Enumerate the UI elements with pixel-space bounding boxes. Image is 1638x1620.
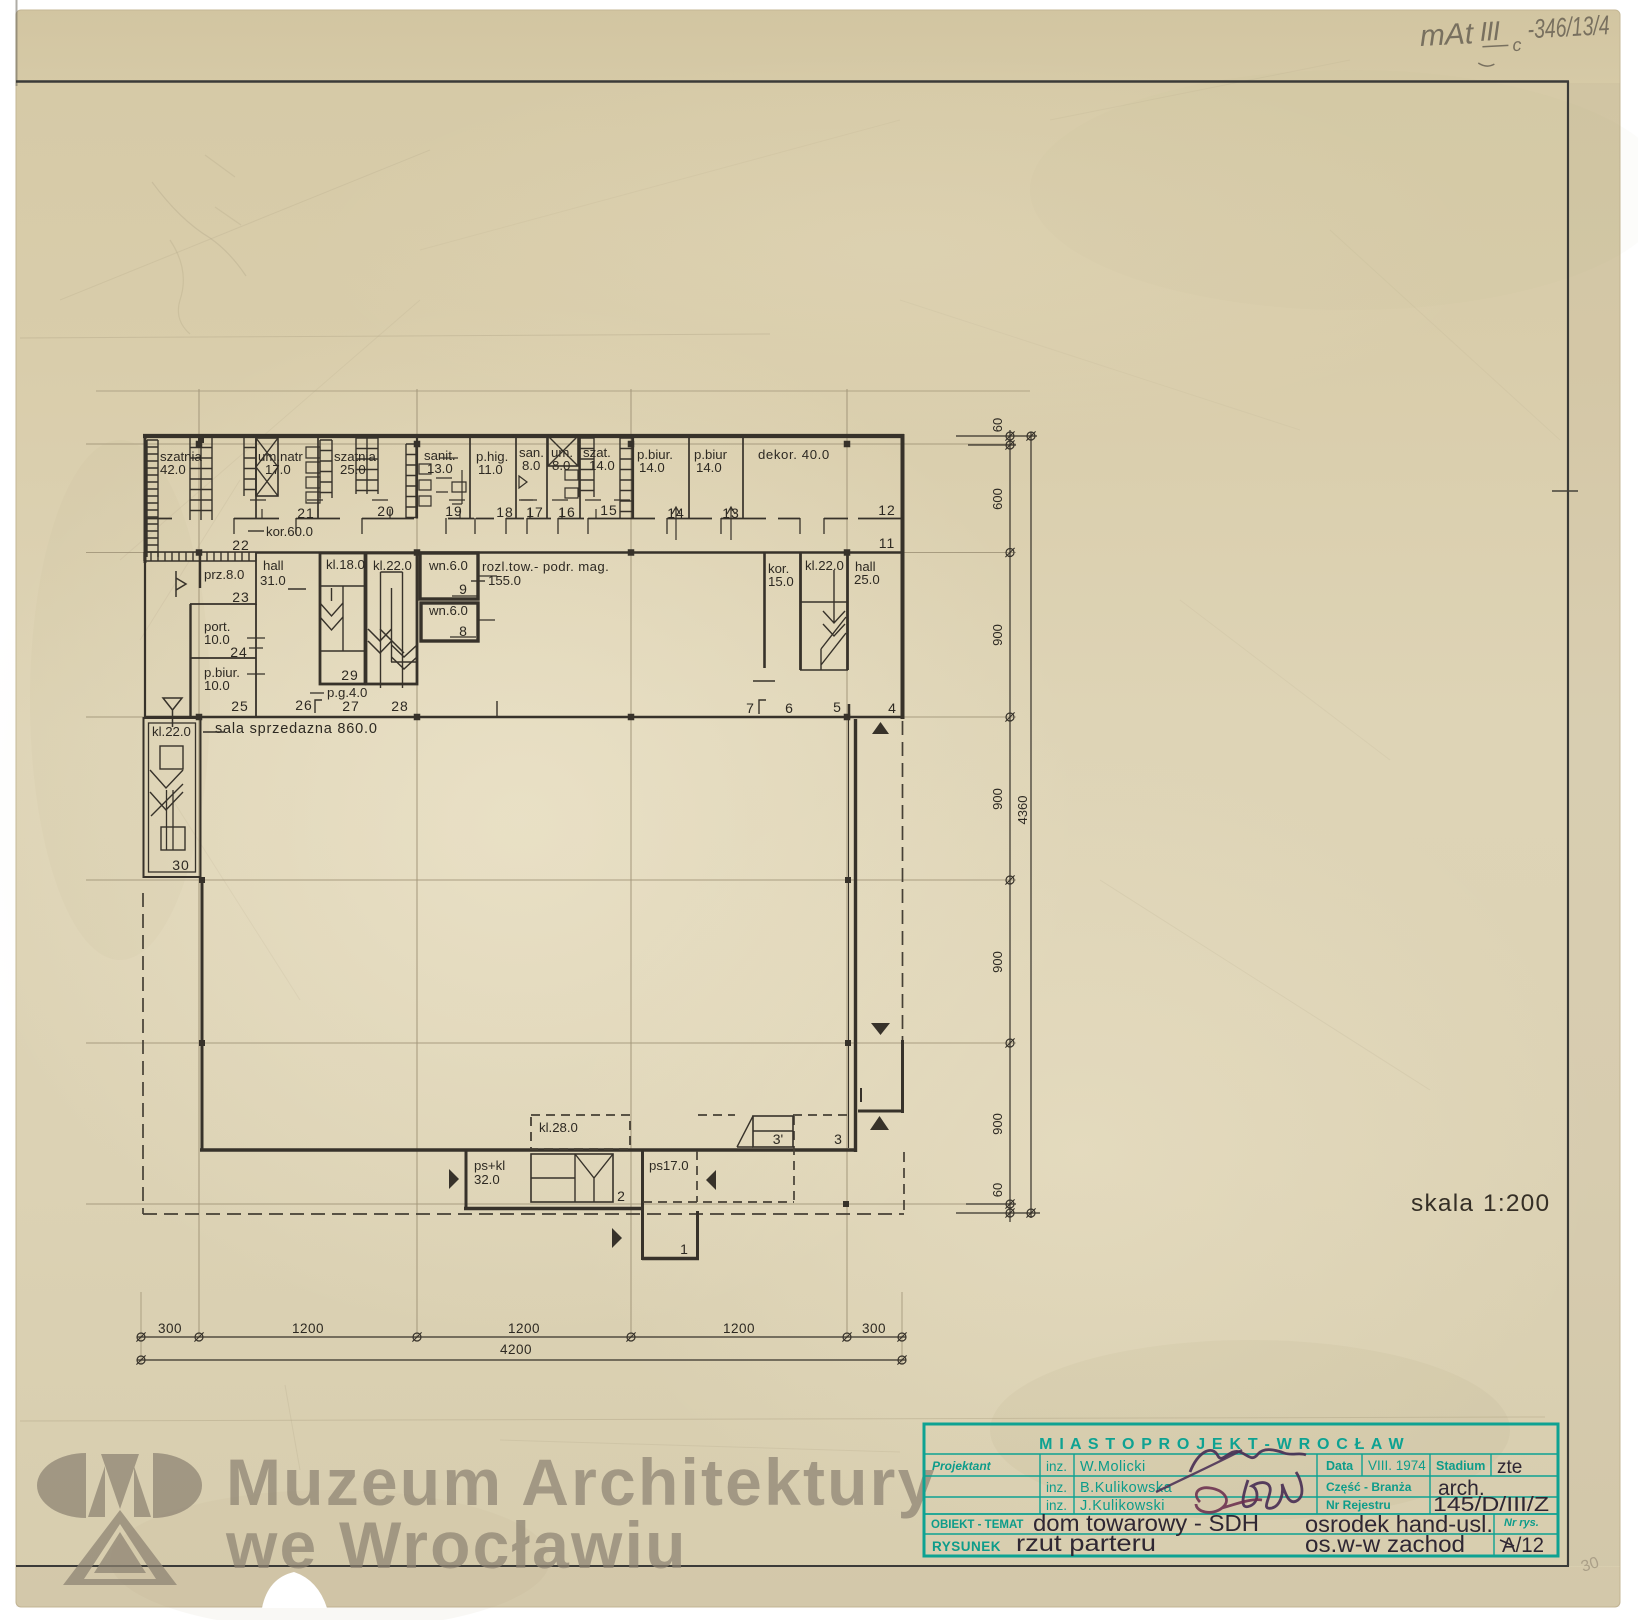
svg-text:A/12: A/12 [1502,1534,1544,1557]
svg-text:Data: Data [1326,1459,1354,1473]
svg-text:15: 15 [600,502,618,518]
svg-text:Projektant: Projektant [932,1459,992,1473]
svg-text:W.Molicki: W.Molicki [1080,1459,1146,1475]
svg-text:13.0: 13.0 [427,461,453,476]
svg-text:kl.22.0: kl.22.0 [152,724,191,739]
svg-text:18: 18 [496,504,514,520]
svg-text:17.0: 17.0 [265,462,291,477]
svg-text:29: 29 [341,667,359,683]
svg-text:-346/13/4: -346/13/4 [1527,10,1610,44]
svg-text:42.0: 42.0 [160,462,186,477]
svg-text:4200: 4200 [500,1342,532,1357]
svg-text:155.0: 155.0 [488,573,521,588]
svg-text:wn.6.0: wn.6.0 [428,558,468,573]
svg-text:900: 900 [990,951,1005,973]
svg-text:kl.28.0: kl.28.0 [539,1120,578,1135]
svg-text:mAt: mAt [1419,17,1476,53]
svg-text:12: 12 [878,502,896,518]
svg-text:28: 28 [391,698,409,714]
svg-text:Część - Branża: Część - Branża [1326,1480,1412,1494]
svg-text:32.0: 32.0 [474,1172,500,1187]
svg-text:27: 27 [342,698,360,714]
svg-text:Nr rys.: Nr rys. [1504,1517,1539,1529]
svg-text:Nr Rejestru: Nr Rejestru [1326,1498,1391,1512]
svg-text:900: 900 [990,1113,1005,1135]
svg-text:8.0: 8.0 [522,458,540,473]
svg-text:8.0: 8.0 [552,458,570,473]
svg-text:kl.18.0: kl.18.0 [326,557,365,572]
svg-text:4: 4 [888,700,896,716]
svg-text:rzut parteru: rzut parteru [1016,1530,1156,1556]
svg-text:19: 19 [445,503,463,519]
svg-text:10.0: 10.0 [204,632,230,647]
svg-text:14: 14 [667,505,685,521]
svg-text:10.0: 10.0 [204,678,230,693]
svg-text:300: 300 [862,1321,886,1336]
svg-text:VIII. 1974: VIII. 1974 [1368,1458,1426,1473]
svg-text:60: 60 [990,418,1005,432]
svg-text:11.0: 11.0 [478,462,503,477]
svg-text:5: 5 [833,699,841,715]
svg-text:20: 20 [377,503,395,519]
svg-text:14.0: 14.0 [589,458,615,473]
svg-text:15.0: 15.0 [768,574,794,589]
svg-text:os.w-w zachod: os.w-w zachod [1305,1531,1465,1557]
svg-text:B.Kulikowska: B.Kulikowska [1080,1480,1173,1496]
svg-text:22: 22 [232,537,250,553]
svg-text:RYSUNEK: RYSUNEK [932,1539,1001,1554]
svg-text:prz.8.0: prz.8.0 [204,567,244,582]
svg-text:we Wrocławiu: we Wrocławiu [225,1508,688,1582]
svg-text:600: 600 [990,488,1005,510]
svg-text:1200: 1200 [508,1321,540,1336]
svg-text:9: 9 [459,581,467,597]
svg-text:sala sprzedazna 860.0: sala sprzedazna 860.0 [215,721,378,737]
svg-text:3': 3' [773,1131,783,1147]
svg-text:25.0: 25.0 [854,572,880,587]
svg-text:25: 25 [231,698,249,714]
svg-text:1: 1 [680,1241,688,1257]
svg-text:1200: 1200 [292,1321,324,1336]
svg-text:25.0: 25.0 [340,462,366,477]
svg-text:III: III [1479,16,1502,47]
svg-text:wn.6.0: wn.6.0 [428,603,468,618]
svg-text:11: 11 [879,535,896,551]
svg-text:900: 900 [990,624,1005,646]
svg-text:300: 300 [158,1321,182,1336]
svg-text:hall: hall [263,558,284,573]
svg-text:Stadium: Stadium [1436,1459,1485,1473]
svg-text:14.0: 14.0 [639,460,665,475]
svg-text:1200: 1200 [723,1321,755,1336]
svg-text:7: 7 [746,700,754,716]
svg-text:6: 6 [785,700,793,716]
svg-text:8: 8 [459,623,467,639]
svg-text:31.0: 31.0 [260,573,286,588]
svg-text:inz.: inz. [1046,1480,1067,1495]
svg-text:30: 30 [172,857,190,873]
svg-text:kl.22.0: kl.22.0 [805,558,844,573]
svg-text:ps+kl: ps+kl [474,1158,505,1173]
svg-text:kor.60.0: kor.60.0 [266,524,313,539]
svg-text:900: 900 [990,788,1005,810]
svg-text:zte: zte [1497,1457,1522,1478]
svg-text:ps17.0: ps17.0 [649,1158,689,1173]
svg-text:M I A S T O P R O J E K T - W: M I A S T O P R O J E K T - W R O C Ł A … [1039,1436,1405,1453]
svg-text:3: 3 [834,1131,842,1147]
svg-text:1:200: 1:200 [1483,1190,1550,1217]
svg-text:13: 13 [722,505,740,521]
svg-text:2: 2 [617,1188,625,1204]
svg-text:17: 17 [526,504,544,520]
svg-text:dekor. 40.0: dekor. 40.0 [758,447,830,462]
svg-text:21: 21 [297,505,315,521]
svg-text:skala: skala [1411,1190,1474,1217]
svg-text:4360: 4360 [1015,796,1030,825]
svg-text:24: 24 [230,644,248,660]
svg-text:inz.: inz. [1046,1459,1067,1474]
svg-text:14.0: 14.0 [696,460,722,475]
svg-text:OBIEKT - TEMAT: OBIEKT - TEMAT [931,1519,1023,1531]
svg-text:16: 16 [558,504,576,520]
svg-text:kl.22.0: kl.22.0 [373,558,412,573]
svg-text:rozl.tow.- podr. mag.: rozl.tow.- podr. mag. [482,559,609,574]
svg-text:23: 23 [232,589,250,605]
svg-text:26: 26 [295,697,313,713]
svg-text:60: 60 [990,1183,1005,1197]
svg-text:c: c [1512,35,1522,55]
